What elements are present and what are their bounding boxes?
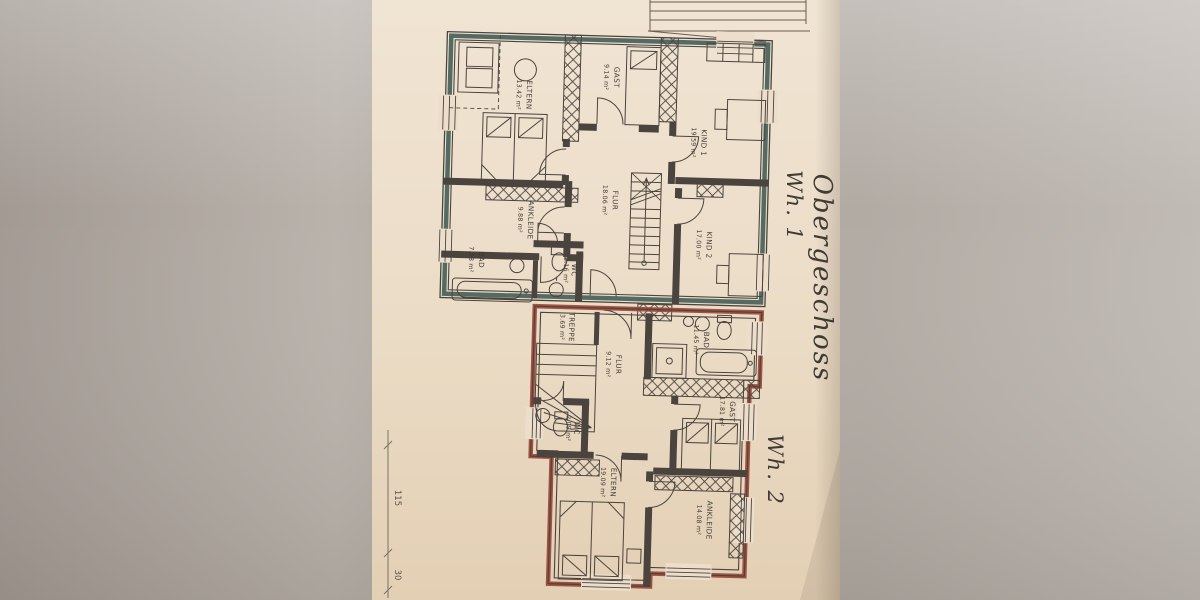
room-label-ankleide2: ANKLEIDE	[704, 501, 714, 540]
room-label-wc1: WC	[570, 264, 579, 277]
room-area-bad2: 11.45 m²	[692, 324, 700, 355]
apartment1-annotation: Wh. 1	[782, 170, 806, 242]
room-label-gast2: GAST	[728, 401, 738, 422]
floor-plan-canvas: ELTERN 13.42 m² GAST 9.14 m² KIND 1 19.5…	[0, 0, 1200, 600]
room-area-kind2: 17.00 m²	[694, 229, 702, 260]
room-area-wc1: 1.16 m²	[561, 257, 569, 284]
room-area-ankleide2: 14.08 m²	[694, 505, 702, 536]
room-label-bad2: BAD	[702, 332, 711, 349]
room-label-wc2: WC	[572, 422, 581, 435]
room-label-kind1: KIND 1	[699, 129, 709, 156]
room-label-treppe: TREPPE	[567, 311, 577, 342]
wardrobe-eltern2-symbol	[555, 459, 599, 476]
wardrobe-ankleide2-side-symbol	[729, 494, 745, 558]
room-area-flur1: 18.06 m²	[600, 185, 608, 216]
room-area-gast2: 17.81 m²	[718, 396, 726, 427]
dimension-label-115: 115	[392, 490, 402, 506]
room-area-treppe: 3.69 m²	[558, 314, 566, 341]
room-area-eltern2: 19.09 m²	[598, 467, 606, 498]
room-label-eltern2: ELTERN	[609, 468, 619, 498]
room-label-flur2: FLUR	[614, 355, 624, 375]
room-area-wc2: 2.09 m²	[564, 415, 572, 442]
room-area-flur2: 9.12 m²	[604, 351, 612, 378]
room-area-bad1: 7.58 m²	[467, 246, 475, 273]
room-area-kind1: 19.59 m²	[689, 127, 697, 158]
room-label-flur1: FLUR	[611, 190, 621, 210]
wardrobe-ankleide2-top-symbol	[655, 476, 733, 492]
room-area-gast1: 9.14 m²	[602, 64, 610, 91]
floor-annotation: Obergeschoss	[807, 174, 837, 383]
room-label-ankleide1: ANKLEIDE	[526, 200, 536, 239]
room-area-ankleide1: 9.88 m²	[516, 207, 524, 234]
dimension-label-30: 30	[392, 570, 402, 581]
room-label-eltern1: ELTERN	[524, 80, 534, 110]
room-area-eltern1: 13.42 m²	[514, 79, 522, 110]
room-label-kind2: KIND 2	[704, 231, 714, 258]
apartment2-annotation: Wh. 2	[763, 434, 787, 506]
floor-plan-photo: ELTERN 13.42 m² GAST 9.14 m² KIND 1 19.5…	[0, 0, 1200, 600]
room-label-gast1: GAST	[612, 67, 622, 88]
room-label-bad1: BAD	[477, 251, 486, 268]
